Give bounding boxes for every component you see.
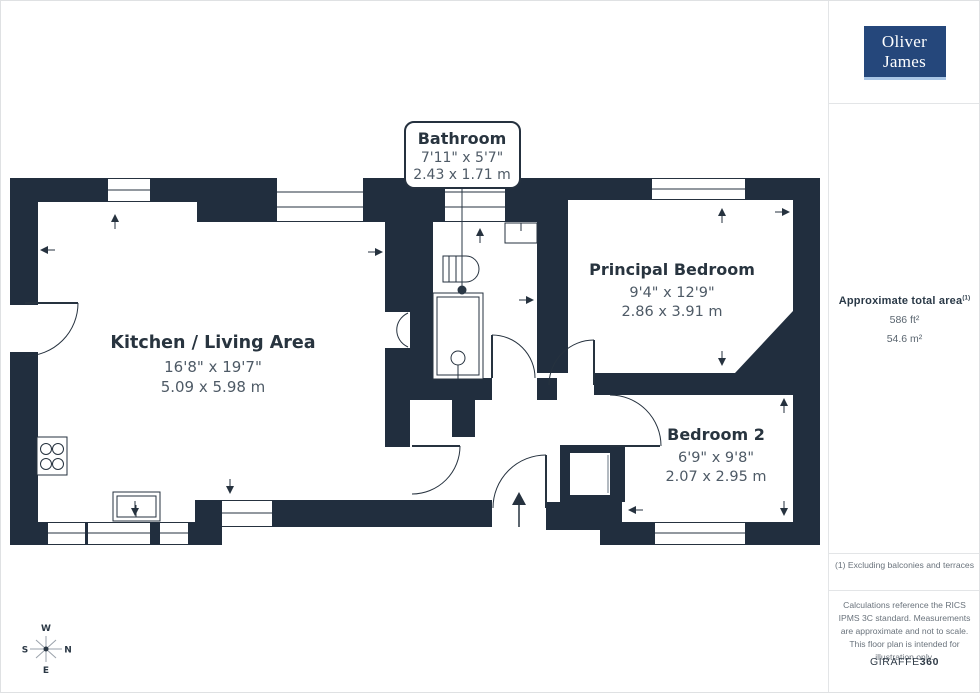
principal-bedroom-label: Principal Bedroom xyxy=(589,260,755,279)
kitchen-label: Kitchen / Living Area xyxy=(110,333,315,353)
shower-icon xyxy=(433,293,483,379)
bathroom-label: Bathroom xyxy=(418,129,507,148)
principal-bedroom-dim-metric: 2.86 x 3.91 m xyxy=(621,304,722,320)
total-area-imperial: 586 ft² xyxy=(829,314,980,326)
stove-icon xyxy=(37,437,67,475)
compass-left: S xyxy=(22,646,28,656)
bathroom-dim-imperial: 7'11" x 5'7" xyxy=(421,150,503,166)
kitchen-dim-metric: 5.09 x 5.98 m xyxy=(161,378,266,396)
kitchen-dim-imperial: 16'8" x 19'7" xyxy=(164,358,262,376)
entry-arrow-icon xyxy=(512,492,526,527)
giraffe360-credit: GIRAFFE360 xyxy=(829,656,980,668)
window xyxy=(222,500,272,527)
floor-plan-area: Bathroom 7'11" x 5'7" 2.43 x 1.71 m Kitc… xyxy=(0,0,828,693)
kitchen-sink-icon xyxy=(113,492,160,521)
toilet-icon xyxy=(443,256,479,282)
compass-right: N xyxy=(64,646,72,656)
door xyxy=(412,446,460,494)
logo-line2: James xyxy=(883,52,926,71)
compass-top: W xyxy=(41,624,51,634)
window xyxy=(48,522,85,545)
bathroom-dim-metric: 2.43 x 1.71 m xyxy=(413,167,511,183)
callout-anchor-dot xyxy=(458,286,467,295)
area-note-ref: (1) xyxy=(962,295,970,301)
door xyxy=(25,303,78,356)
bathroom-sink-icon xyxy=(505,223,537,243)
bedroom-2-label: Bedroom 2 xyxy=(667,425,765,444)
total-area-block: Approximate total area(1) 586 ft² 54.6 m… xyxy=(829,295,980,345)
panel-divider xyxy=(829,590,980,591)
wall-niche xyxy=(397,313,408,347)
window xyxy=(655,522,745,545)
window xyxy=(88,522,150,545)
compass-bottom: E xyxy=(43,666,49,676)
logo-line1: Oliver xyxy=(882,32,927,51)
total-area-title: Approximate total area(1) xyxy=(829,295,980,307)
closet xyxy=(570,453,610,495)
area-footnote: (1) Excluding balconies and terraces xyxy=(829,560,980,570)
bedroom-2-dim-metric: 2.07 x 2.95 m xyxy=(665,469,766,485)
disclaimer-text: Calculations reference the RICS IPMS 3C … xyxy=(829,599,980,663)
compass-icon: W N E S xyxy=(22,624,72,676)
bedroom-2-dim-imperial: 6'9" x 9'8" xyxy=(678,450,754,466)
panel-divider xyxy=(829,103,980,104)
floor-plan-svg: Bathroom 7'11" x 5'7" 2.43 x 1.71 m Kitc… xyxy=(0,0,828,693)
door xyxy=(492,335,535,378)
window xyxy=(652,178,745,200)
window xyxy=(277,178,363,222)
total-area-metric: 54.6 m² xyxy=(829,333,980,345)
oliver-james-logo: Oliver James xyxy=(864,26,946,80)
door xyxy=(610,395,661,446)
credit-bold: 360 xyxy=(920,656,939,668)
window xyxy=(108,178,150,202)
panel-divider xyxy=(829,553,980,554)
walls xyxy=(10,178,820,545)
window xyxy=(160,522,188,545)
info-panel: Oliver James Approximate total area(1) 5… xyxy=(828,0,980,693)
principal-bedroom-dim-imperial: 9'4" x 12'9" xyxy=(629,285,714,301)
credit-normal: GIRAFFE xyxy=(870,656,920,668)
